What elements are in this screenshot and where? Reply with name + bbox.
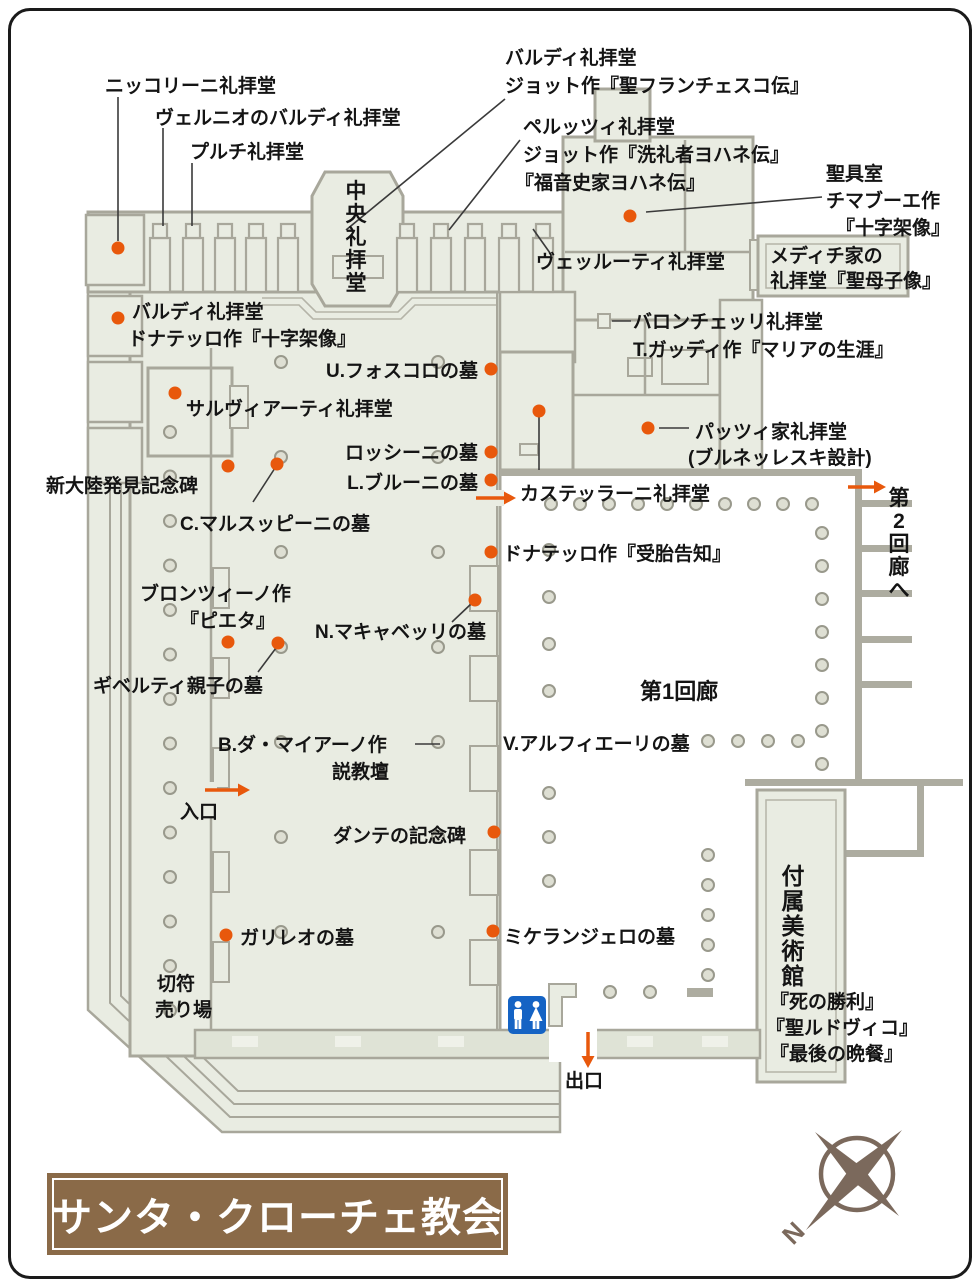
label-to-second-cloister: 第2回廊へ [889,486,910,602]
column-marker [275,546,287,558]
label-alfieri-tomb: V.アルフィエーリの墓 [503,733,691,755]
column-marker [816,527,828,539]
column-marker [604,986,616,998]
chapel-slot-door [281,224,295,238]
column-marker [644,986,656,998]
cloister-top-wall [500,469,862,476]
column-marker [792,735,804,747]
poi-dot [272,637,285,650]
label-velluti-chapel: ヴェッルーティ礼拝堂 [536,250,725,273]
column-marker [543,685,555,697]
column-marker [164,960,176,972]
label-first-cloister: 第1回廊 [640,679,718,704]
arrow-to-cloister2 [848,481,886,494]
label-sacristy-line3: 『十字架像』 [836,216,950,239]
baroncelli-door [598,314,610,328]
column-marker [432,546,444,558]
column-marker [543,638,555,650]
label-marsuppini-tomb: C.マルスッピーニの墓 [180,513,371,535]
museum-side-wall [845,850,921,857]
label-castellani-chapel: カステッラーニ礼拝堂 [520,482,710,505]
label-medici-chapel-line1: メディチ家の [770,244,883,267]
poi-dot [112,242,125,255]
column-marker [816,659,828,671]
column-marker [164,426,176,438]
column-marker [702,849,714,861]
cloister-right-wall [855,469,862,784]
compass-north-label: N [776,1216,810,1250]
chapel-slot-door [400,224,414,238]
chapel-slot [215,238,235,292]
compass-icon [806,1130,902,1230]
poi-dot [112,312,125,325]
column-marker [164,782,176,794]
poi-dot [220,929,233,942]
chapel-slot-door [468,224,482,238]
chapel-slot [431,238,451,292]
label-ticket-office-line2: 売り場 [155,998,212,1021]
label-bronzino-line2: 『ピエタ』 [180,610,275,632]
column-marker [164,738,176,750]
label-central-chapel: 中央礼拝堂 [346,180,368,295]
column-marker [164,827,176,839]
chapel-slot-door [218,224,232,238]
column-marker [164,560,176,572]
column-marker [777,498,789,510]
poi-dot [485,546,498,559]
chapel-slot [150,238,170,292]
column-marker [702,909,714,921]
museum-top-wall [745,779,963,786]
label-niccolini-chapel: ニッコリーニ礼拝堂 [105,74,276,97]
column-marker [748,498,760,510]
side-chapel-room [88,428,142,483]
label-museum-work2: 『聖ルドヴィコ』 [766,1016,918,1039]
column-marker [806,498,818,510]
poi-dot [271,458,284,471]
chapel-slot [499,238,519,292]
label-museum: 付属美術館 [781,863,805,989]
floor-plan: N ニッコリーニ礼拝堂ヴェルニオのバルディ礼拝堂プルチ礼拝堂バルディ礼拝堂ジョッ… [0,0,980,1287]
poi-dot [485,363,498,376]
chapel-slot-door [153,224,167,238]
arrow-to-cloister2-head [874,481,886,494]
label-peruzzi-chapel-line2: ジョット作『洗礼者ヨハネ伝』 [523,143,789,166]
chapel-slot-door [502,224,516,238]
poi-dot [533,405,546,418]
column-marker [543,831,555,843]
label-pulci-chapel: プルチ礼拝堂 [190,140,304,163]
label-pazzi-chapel-line2: (ブルネッレスキ設計) [688,446,872,469]
column-marker [702,735,714,747]
column-marker [816,692,828,704]
label-donatello-annunciation: ドナテッロ作『受胎告知』 [503,542,731,565]
poi-dot [487,925,500,938]
column-marker [543,591,555,603]
label-entrance: 入口 [180,801,218,823]
column-marker [275,831,287,843]
label-museum-work3: 『最後の晩餐』 [770,1042,903,1065]
column-marker [164,916,176,928]
column-marker [543,875,555,887]
label-bardi-giotto-chapel-line1: バルディ礼拝堂 [505,46,637,69]
cloister-detail [687,988,713,997]
column-marker [816,725,828,737]
poi-dot [642,422,655,435]
chapel-slot-door [186,224,200,238]
label-medici-chapel-line2: 礼拝堂『聖母子像』 [770,269,941,292]
column-marker [816,560,828,572]
label-baroncelli-chapel-line2: T.ガッディ作『マリアの生涯』 [633,338,893,361]
label-bardi-donatello-line1: バルディ礼拝堂 [132,300,264,323]
label-maiano-pulpit-line2: 説教壇 [332,760,389,783]
chapel-slot-door [249,224,263,238]
column-marker [164,871,176,883]
poi-dot [169,387,182,400]
poi-dot [222,636,235,649]
santa-croce-map-page: N ニッコリーニ礼拝堂ヴェルニオのバルディ礼拝堂プルチ礼拝堂バルディ礼拝堂ジョッ… [0,0,980,1287]
label-foscolo-tomb: U.フォスコロの墓 [326,360,479,382]
poi-dot [485,474,498,487]
label-baroncelli-chapel-line1: バロンチェッリ礼拝堂 [633,310,823,333]
chapel-slot-door [434,224,448,238]
column-marker [164,515,176,527]
label-exit: 出口 [565,1069,603,1092]
label-dante-monument: ダンテの記念碑 [333,824,466,847]
column-marker [164,649,176,661]
poi-dot [624,210,637,223]
label-new-world-monument: 新大陸発見記念碑 [46,474,198,497]
column-marker [432,926,444,938]
label-bardi-giotto-chapel-line2: ジョット作『聖フランチェスコ伝』 [505,74,809,97]
side-chapel-room [88,362,142,422]
label-bardi-vernio-chapel: ヴェルニオのバルディ礼拝堂 [155,106,401,129]
label-pazzi-chapel-line1: パッツィ家礼拝堂 [695,420,847,443]
poi-dot [488,826,501,839]
label-maiano-pulpit-line1: B.ダ・マイアーノ作 [218,733,387,756]
label-bardi-donatello-line2: ドナテッロ作『十字架像』 [128,327,356,350]
label-bronzino-line1: ブロンツィーノ作 [140,582,291,605]
chapel-slot [465,238,485,292]
map-title-box: サンタ・クローチェ教会 [47,1173,508,1255]
column-marker [164,604,176,616]
label-sacristy-line2: チマブーエ作 [826,189,940,212]
label-peruzzi-chapel-line3: 『福音史家ヨハネ伝』 [515,171,705,194]
label-rossini-tomb: ロッシーニの墓 [345,442,479,464]
arrow-to-cloister1-head [504,492,516,505]
label-michelangelo-tomb: ミケランジェロの墓 [504,926,676,948]
column-marker [816,626,828,638]
exit-corner-wall [549,984,576,1026]
column-marker [762,735,774,747]
column-marker [432,736,444,748]
column-marker [732,735,744,747]
column-marker [719,498,731,510]
column-marker [816,758,828,770]
map-title-frame: サンタ・クローチェ教会 [52,1178,503,1250]
column-marker [816,593,828,605]
column-marker [702,879,714,891]
poi-dot [469,594,482,607]
poi-dot [485,446,498,459]
label-museum-work1: 『死の勝利』 [770,990,884,1013]
chapel-slot [397,238,417,292]
museum-side-wall [917,779,924,857]
label-ghiberti-tomb: ギベルティ親子の墓 [93,674,264,697]
map-title: サンタ・クローチェ教会 [52,1185,503,1243]
label-sacristy-line1: 聖具室 [826,162,883,185]
label-ticket-office-line1: 切符 [157,972,195,995]
label-salviati-chapel: サルヴィアーティ礼拝堂 [186,397,393,420]
label-bruni-tomb: L.ブルーニの墓 [347,471,479,494]
chapel-slot [183,238,203,292]
label-galileo-tomb: ガリレオの墓 [240,927,355,949]
column-marker [702,939,714,951]
column-marker [543,787,555,799]
label-machiavelli-tomb: N.マキャベッリの墓 [315,621,487,643]
column-marker [702,969,714,981]
poi-dot [222,460,235,473]
column-marker [275,356,287,368]
restroom-icon [508,996,546,1034]
label-peruzzi-chapel-line1: ペルッツィ礼拝堂 [523,115,675,138]
chapel-slot [246,238,266,292]
facade-door-band [195,1030,760,1058]
chapel-slot [278,238,298,292]
